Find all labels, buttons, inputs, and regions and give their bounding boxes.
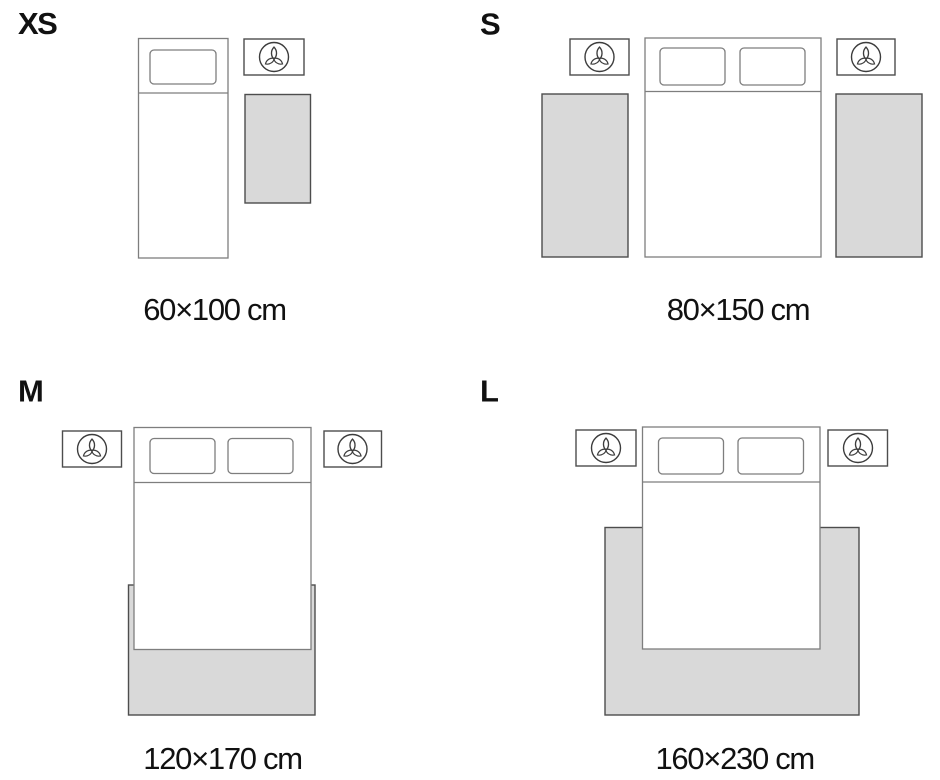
svg-text:M: M	[18, 374, 44, 409]
svg-text:L: L	[480, 374, 499, 409]
svg-text:160×230 cm: 160×230 cm	[655, 741, 813, 776]
svg-text:XS: XS	[18, 6, 57, 41]
svg-text:S: S	[480, 7, 501, 42]
svg-text:120×170 cm: 120×170 cm	[143, 741, 301, 776]
svg-text:80×150 cm: 80×150 cm	[667, 292, 810, 327]
svg-text:60×100 cm: 60×100 cm	[143, 292, 286, 327]
